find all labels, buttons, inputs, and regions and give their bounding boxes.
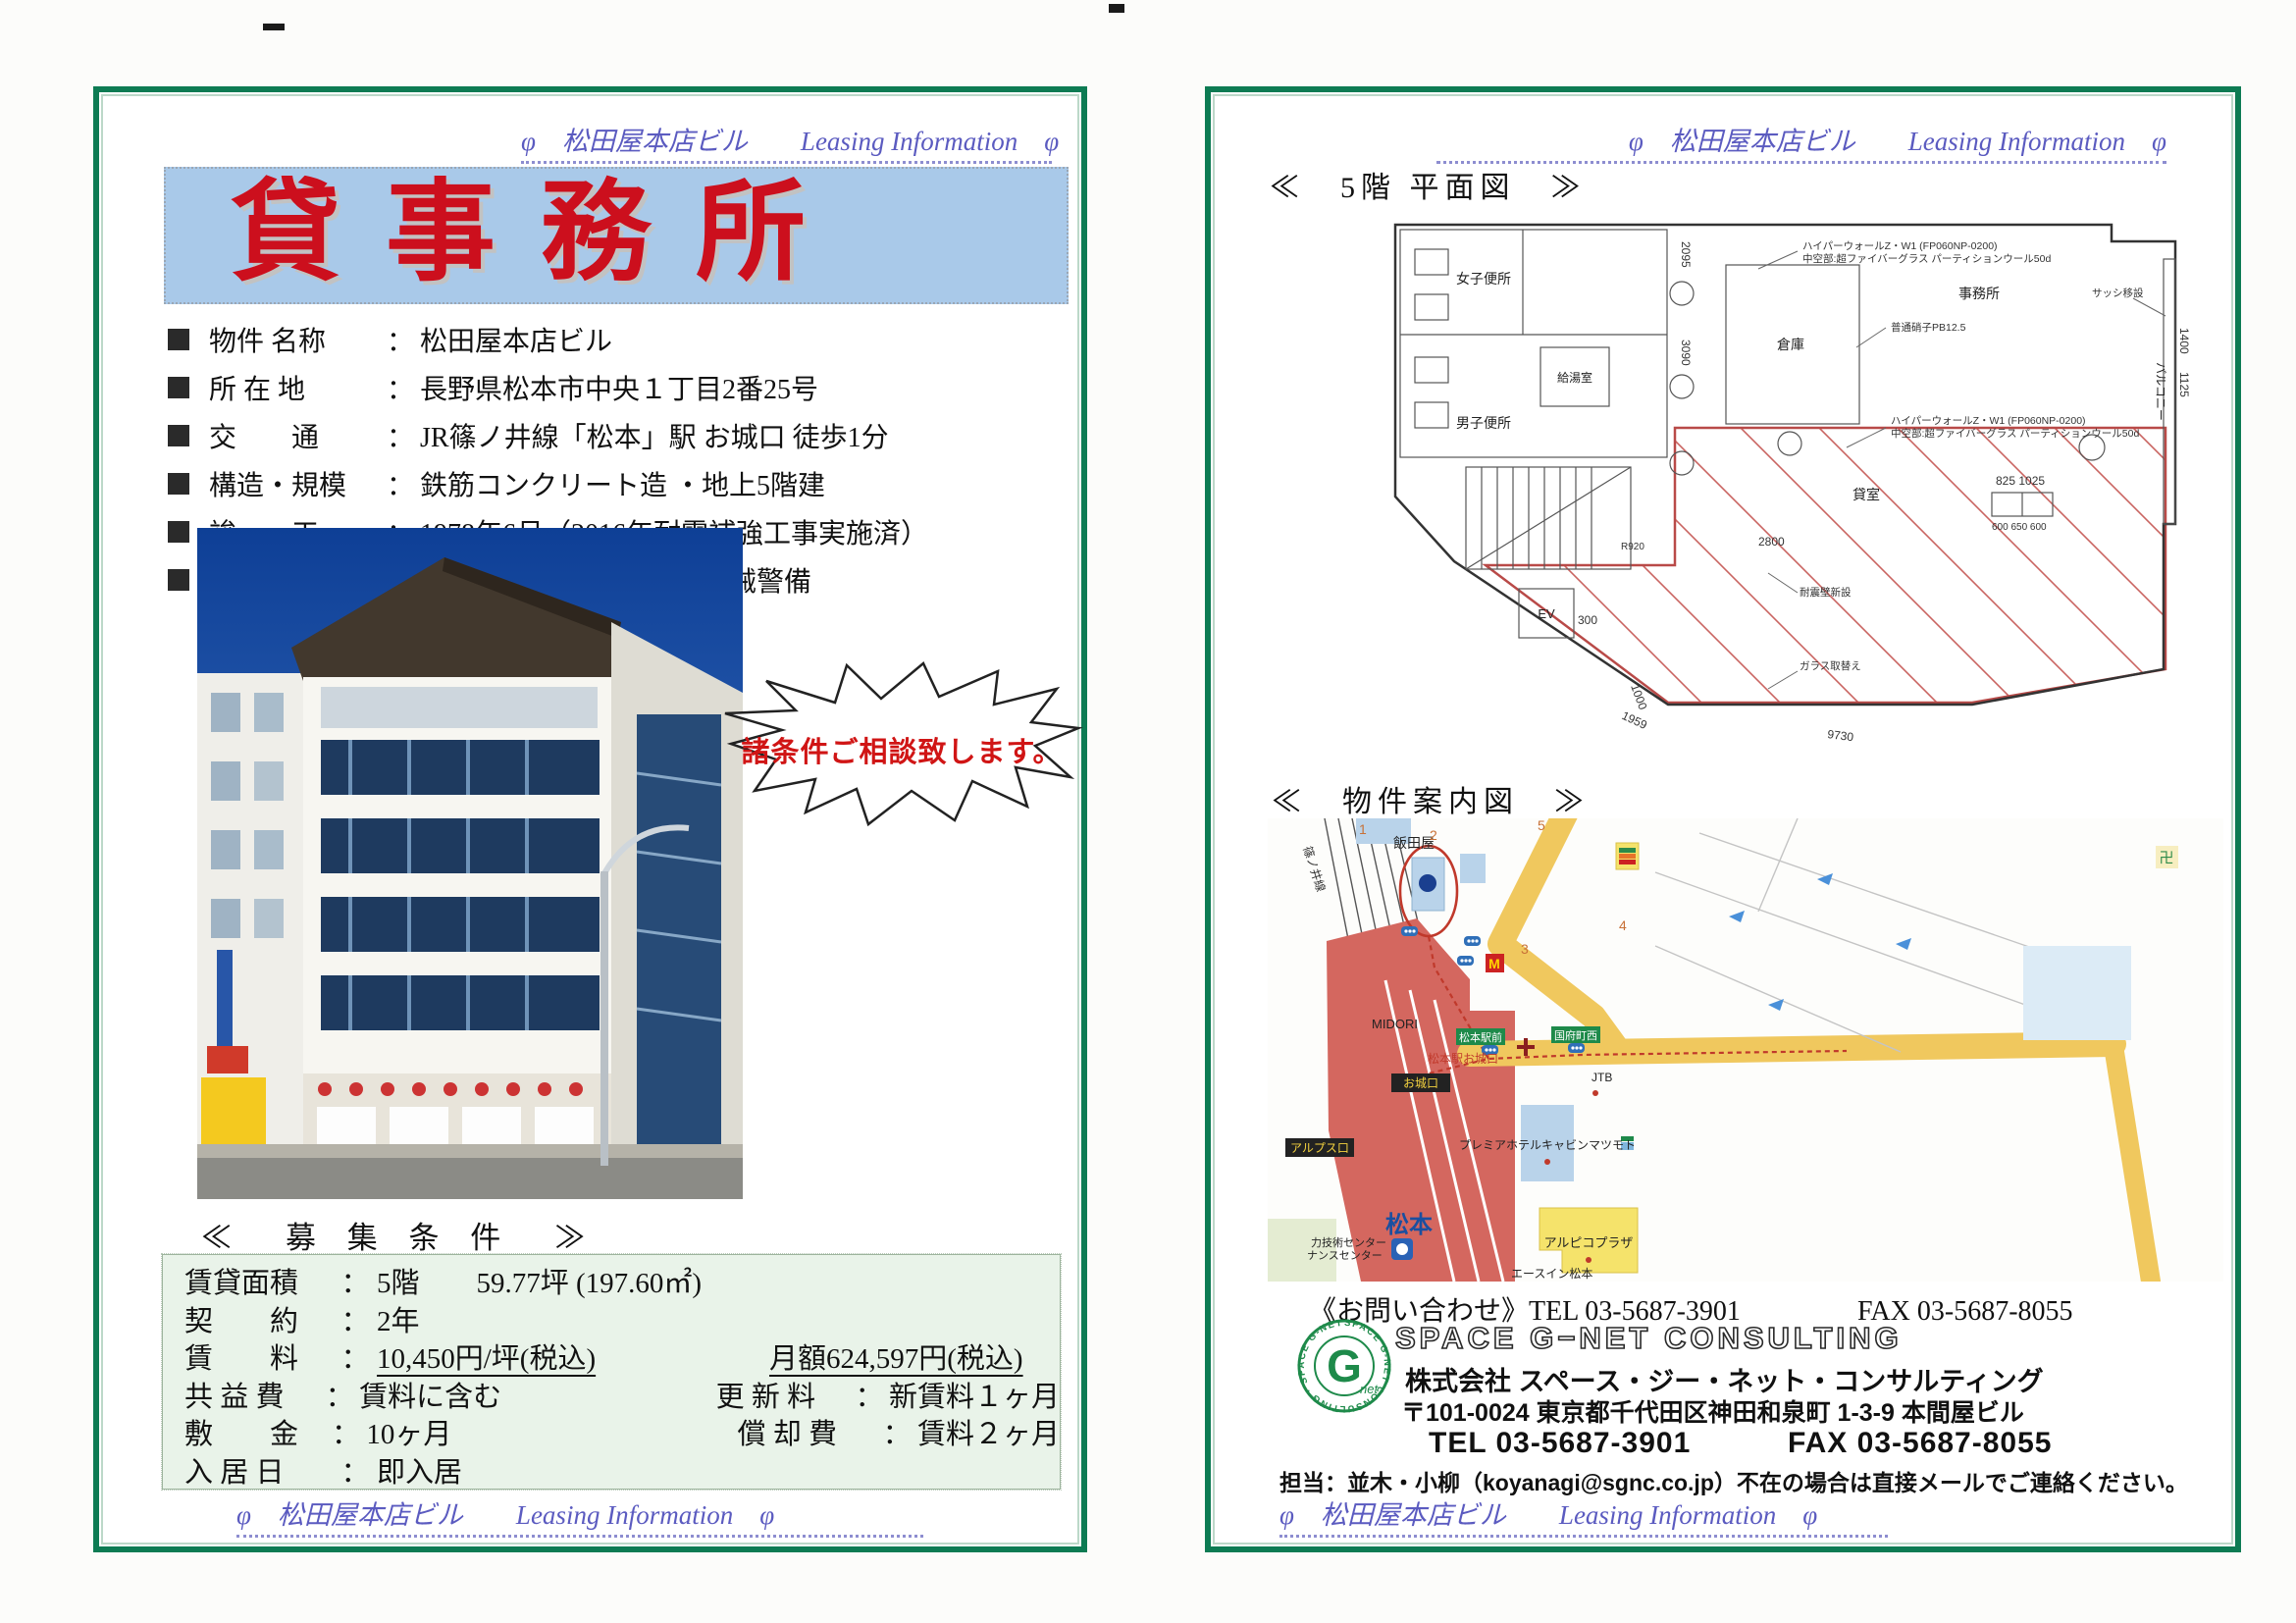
detail-row: 物件 名称 ： 松田屋本店ビル xyxy=(168,320,928,359)
detail-label: 物件 名称 xyxy=(209,320,381,359)
bullet-square-icon xyxy=(168,473,189,495)
tel-fax-line: TEL 03-5687-3901 FAX 03-5687-8055 xyxy=(1429,1427,2052,1460)
brand-name: SPACE G−NET CONSULTING xyxy=(1395,1321,1903,1356)
condition-row: 賃 料 ： 10,450円/坪(税込) 月額624,597円(税込) xyxy=(184,1340,1060,1379)
flyer-page-right: φ 松田屋本店ビル Leasing Information φ ≪ 5階 平面図… xyxy=(1205,86,2241,1552)
cond-label: 入 居 日 xyxy=(184,1454,334,1492)
bullet-square-icon xyxy=(168,425,189,446)
cond-colon: ： xyxy=(334,1454,377,1492)
detail-row: 交 通 ： JR篠ノ井線「松本」駅 お城口 徒歩1分 xyxy=(168,416,928,455)
bullet-square-icon xyxy=(168,329,189,350)
cond-colon: ： xyxy=(326,1416,367,1454)
footer-text: φ 松田屋本店ビル Leasing Information φ xyxy=(236,1500,774,1530)
cond-label: 契 約 xyxy=(184,1303,334,1341)
scanned-flyer: φ 松田屋本店ビル Leasing Information φ 貸事務所 物件 … xyxy=(0,0,2296,1623)
cond-value-monthly: 月額624,597円(税込) xyxy=(769,1340,1023,1379)
detail-value: 松田屋本店ビル xyxy=(420,320,612,359)
conditions-heading: ≪ 募 集 条 件 ≫ xyxy=(201,1213,597,1257)
cond-colon: ： xyxy=(334,1303,377,1341)
detail-label: 交 通 xyxy=(209,416,381,455)
condition-row: 契 約 ： 2年 xyxy=(184,1303,1060,1341)
contact-fax: FAX 03-5687-8055 xyxy=(1788,1427,2053,1459)
detail-value: 長野県松本市中央１丁目2番25号 xyxy=(420,368,818,407)
cond-colon: ： xyxy=(876,1416,917,1454)
detail-row: 構造・規模 ： 鉄筋コンクリート造 ・地上5階建 xyxy=(168,464,928,503)
bullet-square-icon xyxy=(168,569,189,591)
detail-colon: ： xyxy=(381,416,420,455)
cond-colon: ： xyxy=(320,1379,359,1417)
condition-row: 賃貸面積 ： 5階 59.77坪 (197.60㎡) xyxy=(184,1265,1060,1303)
flyer-page-left: φ 松田屋本店ビル Leasing Information φ 貸事務所 物件 … xyxy=(93,86,1087,1552)
cond-label2: 更 新 料 xyxy=(716,1379,850,1417)
cond-value: 賃料に含む xyxy=(359,1379,716,1417)
cond-value: 10,450円/坪(税込) xyxy=(377,1343,596,1375)
condition-row: 敷 金 ： 10ヶ月 償 却 費 ： 賃料２ヶ月 xyxy=(184,1416,1060,1454)
cond-value: 10ヶ月 xyxy=(366,1416,737,1454)
cond-colon: ： xyxy=(334,1340,377,1379)
detail-colon: ： xyxy=(381,368,420,407)
page-header: φ 松田屋本店ビル Leasing Information φ xyxy=(521,120,1052,164)
cond-value2: 賃料２ヶ月 xyxy=(917,1416,1060,1454)
detail-colon: ： xyxy=(381,464,420,503)
header-text: φ 松田屋本店ビル Leasing Information φ xyxy=(521,127,1059,156)
cond-label: 敷 金 xyxy=(184,1416,326,1454)
detail-row: 所 在 地 ： 長野県松本市中央１丁目2番25号 xyxy=(168,368,928,407)
company-logo: SPACE G-NET CONSULTING · SPACE G-NET G n… xyxy=(1295,1317,1393,1415)
cond-label: 共 益 費 xyxy=(184,1379,320,1417)
building-photo-art xyxy=(197,528,743,1199)
cond-label: 賃 料 xyxy=(184,1340,334,1379)
contact-person: 担当：並木・小柳（koyanagi@sgnc.co.jp）不在の場合は直接メール… xyxy=(1279,1464,2188,1497)
bubble-text: 諸条件ご相談致します。 xyxy=(719,659,1084,834)
registration-mark xyxy=(263,24,285,30)
cond-colon: ： xyxy=(850,1379,889,1417)
cond-label2: 償 却 費 xyxy=(738,1416,877,1454)
cond-colon: ： xyxy=(334,1265,377,1303)
building-photo xyxy=(197,528,743,1199)
company-address: 〒101-0024 東京都千代田区神田和泉町 1-3-9 本間屋ビル xyxy=(1401,1393,2024,1429)
bullet-square-icon xyxy=(168,521,189,543)
contact-section: 《お問い合わせ》TEL 03-5687-3901 FAX 03-5687-805… xyxy=(1211,92,2235,1546)
detail-value: JR篠ノ井線「松本」駅 お城口 徒歩1分 xyxy=(420,416,889,455)
page-footer: φ 松田屋本店ビル Leasing Information φ xyxy=(1279,1493,1888,1538)
bullet-square-icon xyxy=(168,377,189,398)
detail-label: 所 在 地 xyxy=(209,368,381,407)
cond-value: 5階 59.77坪 (197.60㎡) xyxy=(377,1265,769,1303)
detail-value: 鉄筋コンクリート造 ・地上5階建 xyxy=(420,464,825,503)
logo-net-script: net xyxy=(1360,1382,1379,1396)
cond-value: 即入居 xyxy=(377,1454,769,1492)
registration-mark xyxy=(1109,4,1124,13)
cond-value2: 新賃料１ヶ月 xyxy=(889,1379,1060,1417)
detail-colon: ： xyxy=(381,320,420,359)
page-footer: φ 松田屋本店ビル Leasing Information φ xyxy=(236,1493,923,1538)
page-title: 貸事務所 xyxy=(166,169,1067,298)
contact-tel: TEL 03-5687-3901 xyxy=(1429,1427,1691,1459)
detail-label: 構造・規模 xyxy=(209,464,381,503)
condition-row: 入 居 日 ： 即入居 xyxy=(184,1454,1060,1492)
footer-text: φ 松田屋本店ビル Leasing Information φ xyxy=(1279,1500,1817,1530)
logo-letter-g: G xyxy=(1327,1340,1362,1391)
cond-label: 賃貸面積 xyxy=(184,1265,334,1303)
conditions-table: 賃貸面積 ： 5階 59.77坪 (197.60㎡) 契 約 ： 2年 賃 料 … xyxy=(162,1254,1061,1490)
cond-value: 2年 xyxy=(377,1303,769,1341)
condition-row: 共 益 費 ： 賃料に含む 更 新 料 ： 新賃料１ヶ月 xyxy=(184,1379,1060,1417)
title-banner: 貸事務所 xyxy=(164,167,1069,304)
callout-bubble: 諸条件ご相談致します。 xyxy=(719,659,1084,828)
